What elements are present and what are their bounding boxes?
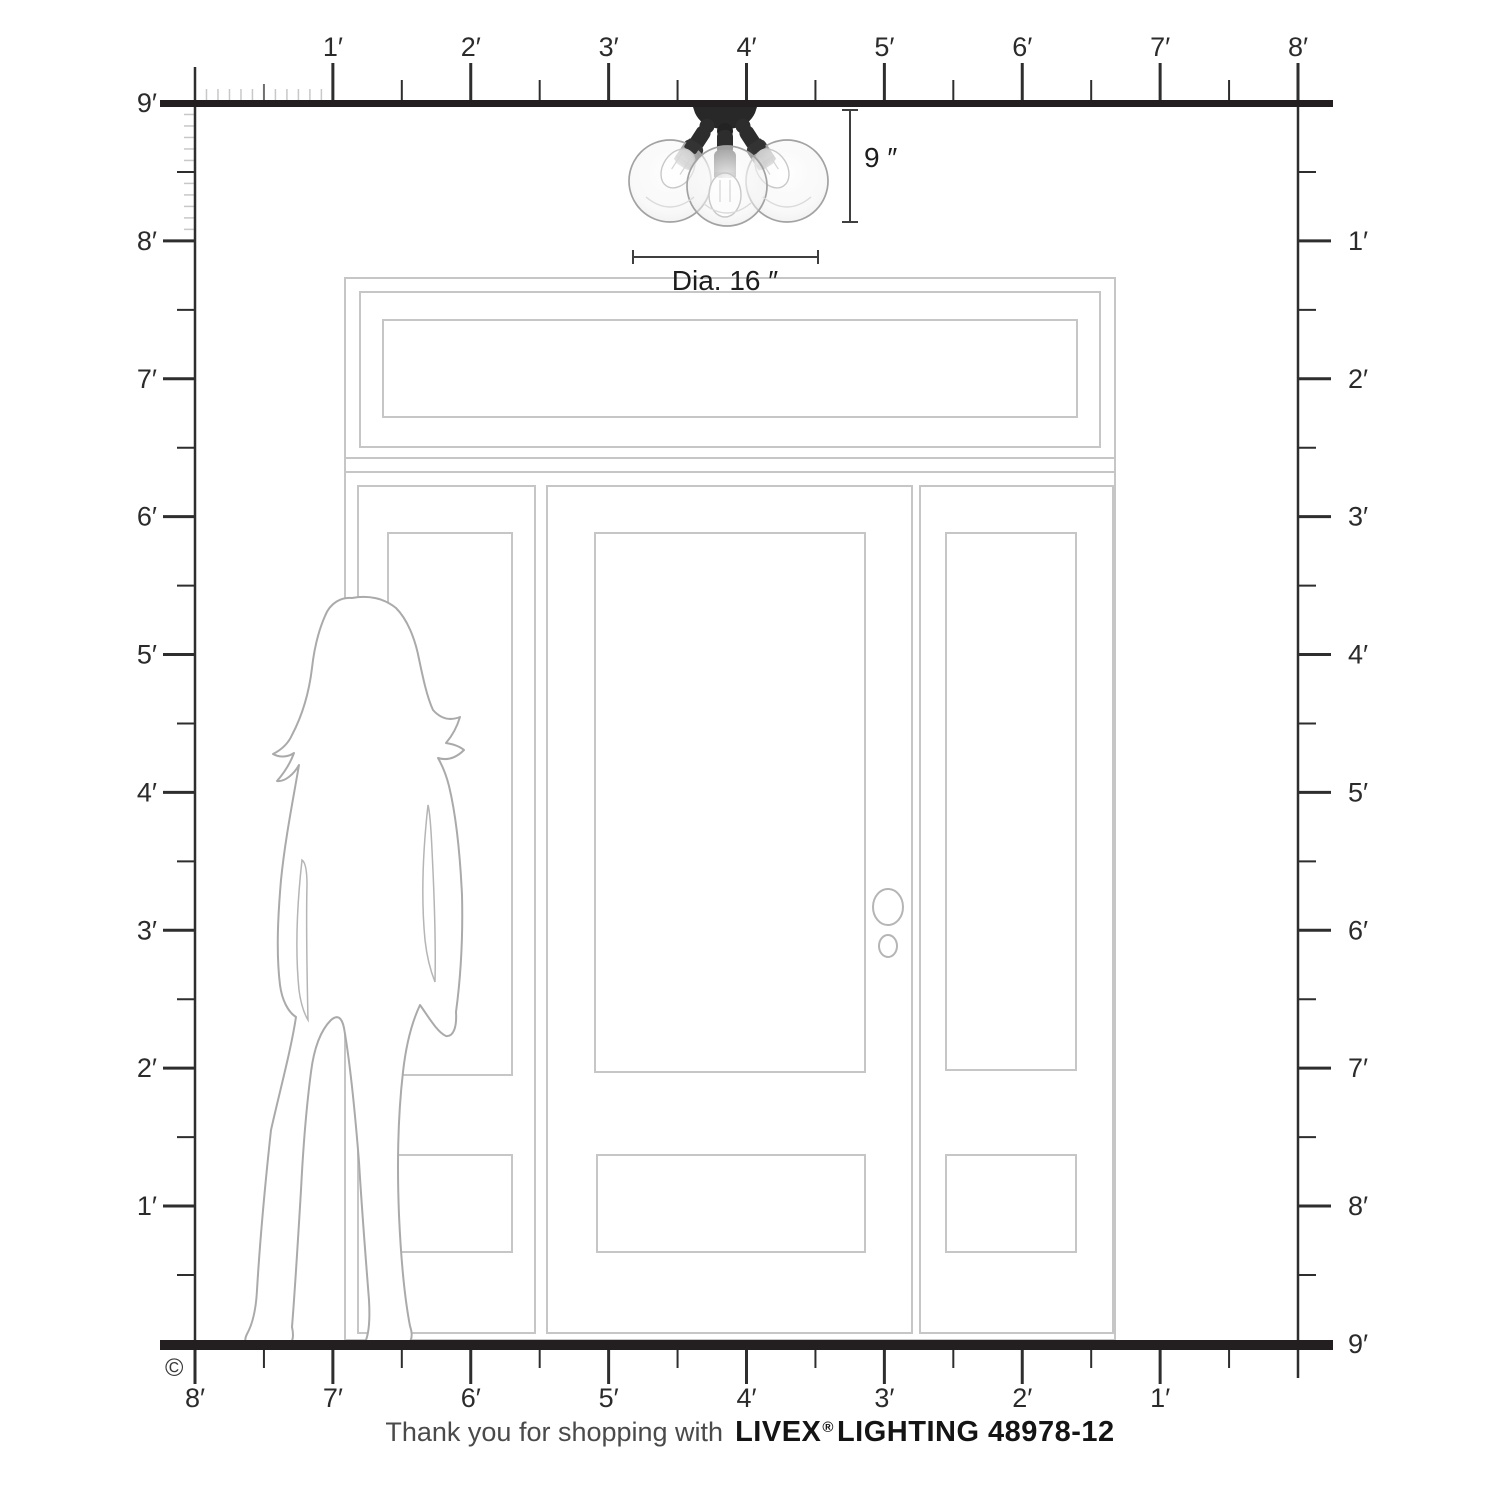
ruler-label-left-8: 8′ — [137, 226, 157, 256]
person-silhouette — [245, 597, 464, 1345]
ruler-label-bottom-2: 2′ — [1012, 1383, 1032, 1413]
ruler-label-bottom-1: 1′ — [1150, 1383, 1170, 1413]
ruler-label-top-2: 2′ — [461, 32, 481, 62]
ruler-label-left-1: 1′ — [137, 1191, 157, 1221]
ruler-label-top-8: 8′ — [1288, 32, 1308, 62]
ruler-label-right-4: 4′ — [1348, 640, 1368, 670]
ruler-label-right-5: 5′ — [1348, 777, 1368, 807]
ruler-label-top-6: 6′ — [1012, 32, 1032, 62]
ruler-label-right-2: 2′ — [1348, 364, 1368, 394]
ruler-label-bottom-8: 8′ — [185, 1383, 205, 1413]
ruler-label-top-3: 3′ — [599, 32, 619, 62]
left-sidelight-lower-panel — [388, 1155, 512, 1252]
transom-mid-frame — [360, 292, 1100, 447]
ruler-label-bottom-4: 4′ — [736, 1383, 756, 1413]
ruler-label-left-6: 6′ — [137, 502, 157, 532]
ruler-label-right-9: 9′ — [1348, 1329, 1368, 1359]
diameter-dimension — [633, 250, 818, 264]
ruler-label-top-1: 1′ — [323, 32, 343, 62]
height-dimension-label: 9 ″ — [864, 142, 897, 173]
ceiling-line — [160, 100, 1333, 107]
transom-glass — [383, 320, 1077, 417]
ruler-label-left-3: 3′ — [137, 915, 157, 945]
ruler-label-left-5: 5′ — [137, 640, 157, 670]
ruler-label-bottom-5: 5′ — [599, 1383, 619, 1413]
diagram-canvas: 1′2′3′4′5′6′7′8′ 9′8′7′6′5′4′3′2′1′ 1′2′… — [0, 0, 1500, 1500]
footer-brand: LIVEX®LIGHTING 48978-12 — [735, 1416, 1115, 1448]
product-dimension-diagram: 1′2′3′4′5′6′7′8′ 9′8′7′6′5′4′3′2′1′ 1′2′… — [0, 0, 1500, 1500]
ruler-right: 1′2′3′4′5′6′7′8′9′ — [1298, 172, 1368, 1359]
ruler-label-top-4: 4′ — [736, 32, 756, 62]
ruler-label-left-2: 2′ — [137, 1053, 157, 1083]
ruler-label-top-5: 5′ — [874, 32, 894, 62]
transom-sill-band — [345, 458, 1115, 472]
ruler-label-left-7: 7′ — [137, 364, 157, 394]
brand-suffix: LIGHTING 48978-12 — [837, 1416, 1115, 1448]
floor-line — [160, 1340, 1333, 1350]
ruler-label-right-8: 8′ — [1348, 1191, 1368, 1221]
brand-name: LIVEX — [735, 1416, 821, 1448]
door-upper-panel — [595, 533, 865, 1072]
footer-text: Thank you for shopping withLIVEX®LIGHTIN… — [0, 1416, 1500, 1449]
door-drawing — [345, 278, 1115, 1340]
ruler-label-left-9: 9′ — [137, 88, 157, 118]
height-dimension — [842, 110, 858, 222]
diameter-dimension-label: Dia. 16 ″ — [672, 265, 778, 296]
right-sidelight-upper-panel — [946, 533, 1076, 1070]
copyright-symbol: © — [165, 1354, 184, 1382]
door-knob — [873, 889, 903, 925]
right-sidelight — [920, 486, 1113, 1333]
ruler-left: 9′8′7′6′5′4′3′2′1′ — [137, 88, 195, 1275]
door-slab — [547, 486, 912, 1333]
light-fixture — [629, 107, 828, 226]
door-lower-panel — [597, 1155, 865, 1252]
ruler-label-bottom-6: 6′ — [461, 1383, 481, 1413]
right-sidelight-lower-panel — [946, 1155, 1076, 1252]
ruler-label-bottom-3: 3′ — [874, 1383, 894, 1413]
transom-outer-frame — [345, 278, 1115, 458]
ruler-label-right-6: 6′ — [1348, 915, 1368, 945]
ruler-label-top-7: 7′ — [1150, 32, 1170, 62]
ruler-label-right-7: 7′ — [1348, 1053, 1368, 1083]
ruler-bottom: 8′7′6′5′4′3′2′1′ — [185, 1350, 1229, 1413]
registered-trademark-icon: ® — [822, 1419, 834, 1436]
ruler-label-right-3: 3′ — [1348, 502, 1368, 532]
door-keyhole — [879, 935, 897, 957]
footer-message: Thank you for shopping with — [385, 1417, 723, 1447]
ruler-label-right-1: 1′ — [1348, 226, 1368, 256]
ruler-label-left-4: 4′ — [137, 777, 157, 807]
ruler-top: 1′2′3′4′5′6′7′8′ — [206, 32, 1308, 100]
ruler-label-bottom-7: 7′ — [323, 1383, 343, 1413]
